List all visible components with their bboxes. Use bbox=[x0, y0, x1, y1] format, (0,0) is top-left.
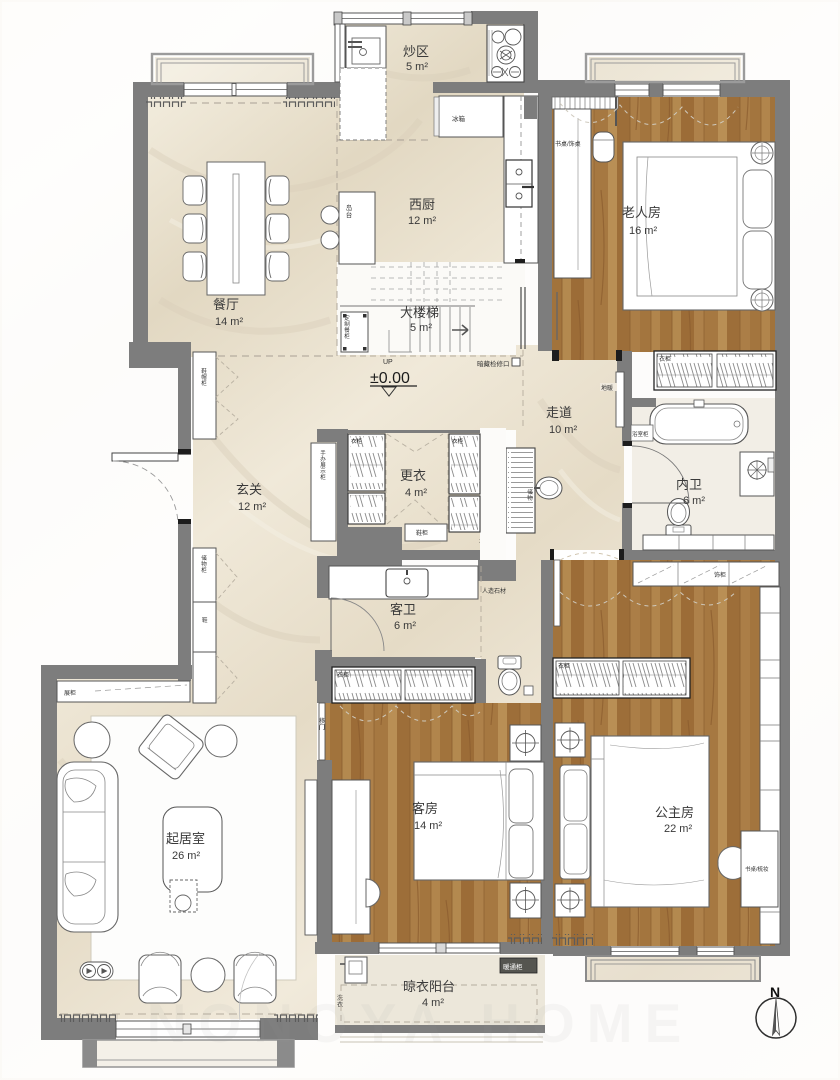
svg-text:书桌/梳妆: 书桌/梳妆 bbox=[745, 865, 769, 873]
svg-text:客房: 客房 bbox=[412, 801, 438, 816]
svg-text:鞋帽柜: 鞋帽柜 bbox=[201, 367, 207, 387]
svg-text:储物: 储物 bbox=[527, 488, 533, 502]
svg-text:内卫: 内卫 bbox=[676, 477, 702, 492]
svg-text:暗藏检修口: 暗藏检修口 bbox=[477, 359, 510, 368]
svg-text:衣柜: 衣柜 bbox=[337, 671, 349, 679]
svg-text:冰箱: 冰箱 bbox=[452, 114, 466, 123]
svg-text:12 m²: 12 m² bbox=[238, 501, 266, 513]
svg-text:10 m²: 10 m² bbox=[549, 424, 577, 436]
svg-text:手办展示柜: 手办展示柜 bbox=[320, 449, 326, 481]
svg-text:老人房: 老人房 bbox=[622, 205, 661, 220]
svg-text:鞋柜: 鞋柜 bbox=[416, 529, 428, 537]
svg-text:储物柜: 储物柜 bbox=[201, 554, 207, 574]
svg-text:UP: UP bbox=[383, 359, 393, 366]
svg-text:更衣: 更衣 bbox=[400, 468, 426, 483]
svg-text:6 m²: 6 m² bbox=[394, 620, 416, 632]
svg-text:衣柜: 衣柜 bbox=[351, 437, 363, 445]
svg-text:公主房: 公主房 bbox=[655, 805, 694, 820]
svg-text:衣柜: 衣柜 bbox=[558, 662, 570, 670]
svg-text:书桌/饰桌: 书桌/饰桌 bbox=[555, 140, 581, 148]
svg-text:22 m²: 22 m² bbox=[664, 823, 692, 835]
svg-text:6 m²: 6 m² bbox=[683, 495, 705, 507]
svg-text:NONOYA HOME: NONOYA HOME bbox=[147, 992, 694, 1054]
svg-text:浴室柜: 浴室柜 bbox=[632, 430, 649, 438]
svg-text:暖通柜: 暖通柜 bbox=[503, 962, 523, 971]
svg-text:炒区: 炒区 bbox=[403, 44, 429, 59]
svg-text:饰柜: 饰柜 bbox=[714, 571, 726, 579]
svg-text:鞋: 鞋 bbox=[202, 616, 208, 624]
svg-text:移门: 移门 bbox=[319, 717, 325, 731]
svg-text:人造石材: 人造石材 bbox=[482, 587, 506, 595]
svg-text:16 m²: 16 m² bbox=[629, 225, 657, 237]
svg-text:岛台: 岛台 bbox=[346, 203, 353, 219]
svg-text:5 m²: 5 m² bbox=[410, 322, 432, 334]
svg-text:展柜: 展柜 bbox=[64, 689, 76, 697]
svg-text:5 m²: 5 m² bbox=[406, 61, 428, 73]
svg-text:走道: 走道 bbox=[546, 405, 572, 420]
svg-text:14 m²: 14 m² bbox=[414, 820, 442, 832]
svg-text:12 m²: 12 m² bbox=[408, 215, 436, 227]
svg-text:衣柜: 衣柜 bbox=[659, 355, 671, 363]
svg-text:26 m²: 26 m² bbox=[172, 850, 200, 862]
svg-text:14 m²: 14 m² bbox=[215, 316, 243, 328]
svg-text:客卫: 客卫 bbox=[390, 602, 416, 617]
svg-text:4 m²: 4 m² bbox=[405, 487, 427, 499]
svg-text:西厨: 西厨 bbox=[409, 197, 435, 212]
svg-text:玄关: 玄关 bbox=[236, 482, 262, 497]
svg-text:N: N bbox=[770, 984, 780, 1000]
svg-text:起居室: 起居室 bbox=[166, 831, 205, 846]
svg-text:定制餐柜: 定制餐柜 bbox=[344, 314, 350, 340]
svg-text:±0.00: ±0.00 bbox=[370, 370, 410, 387]
svg-text:地暖: 地暖 bbox=[601, 384, 613, 392]
svg-text:大楼梯: 大楼梯 bbox=[400, 305, 439, 320]
svg-text:餐厅: 餐厅 bbox=[213, 297, 239, 312]
svg-text:衣柜: 衣柜 bbox=[452, 437, 464, 445]
